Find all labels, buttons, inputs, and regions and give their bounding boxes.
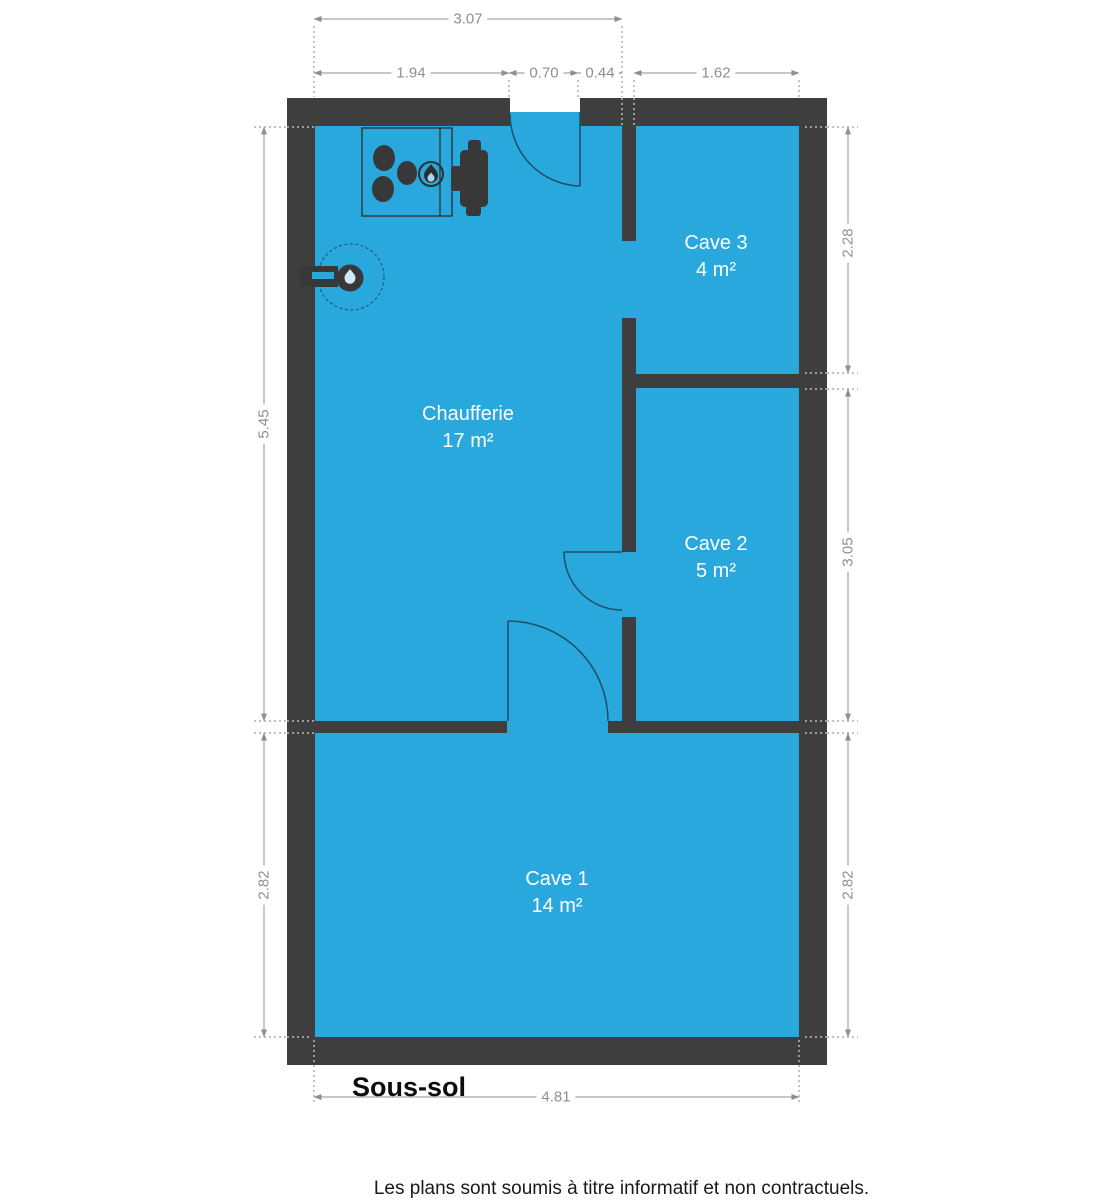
floor-title: Sous-sol xyxy=(352,1072,466,1103)
water-heater-icon xyxy=(451,140,488,216)
room-label-cave3: Cave 3 4 m² xyxy=(684,230,747,284)
dim-label-right-cave1: 2.82 xyxy=(840,865,857,904)
cave1-door-swing xyxy=(508,621,608,721)
cave2-door-swing xyxy=(564,552,622,610)
room-label-cave1: Cave 1 14 m² xyxy=(525,866,588,920)
extension-lines xyxy=(254,26,858,1103)
room-name: Cave 3 xyxy=(684,230,747,257)
entrance-door-arc xyxy=(510,114,580,186)
dim-label-right-cave3: 2.28 xyxy=(840,223,857,262)
burner-icon xyxy=(372,176,394,202)
room-area: 4 m² xyxy=(684,257,747,284)
water-meter-icon xyxy=(300,244,384,310)
dim-label-top-total: 3.07 xyxy=(448,11,487,28)
cave2-door-arc xyxy=(564,552,622,610)
plan-vector-layer xyxy=(0,0,1113,1200)
room-name: Chaufferie xyxy=(422,401,514,428)
dim-label-bottom-total: 4.81 xyxy=(536,1089,575,1106)
entrance-door-swing xyxy=(510,112,580,186)
burner-icon xyxy=(373,145,395,171)
room-name: Cave 1 xyxy=(525,866,588,893)
boiler-icon xyxy=(362,128,452,216)
dim-label-top-left: 1.94 xyxy=(391,65,430,82)
room-area: 17 m² xyxy=(422,428,514,455)
floor-plan-page: Chaufferie 17 m² Cave 3 4 m² Cave 2 5 m²… xyxy=(0,0,1113,1200)
room-label-cave2: Cave 2 5 m² xyxy=(684,531,747,585)
room-area: 5 m² xyxy=(684,558,747,585)
dim-label-left-cave1: 2.82 xyxy=(256,865,273,904)
room-name: Cave 2 xyxy=(684,531,747,558)
dim-label-top-cave3: 1.62 xyxy=(696,65,735,82)
dim-label-left-chaufferie: 5.45 xyxy=(256,404,273,443)
dim-label-top-pier: 0.44 xyxy=(580,65,619,82)
disclaimer-text: Les plans sont soumis à titre informatif… xyxy=(130,1178,1113,1200)
dim-label-top-door: 0.70 xyxy=(524,65,563,82)
room-area: 14 m² xyxy=(525,893,588,920)
dim-label-right-cave2: 3.05 xyxy=(840,532,857,571)
cave1-door-arc xyxy=(508,621,608,721)
burner-icon xyxy=(397,161,417,185)
room-label-chaufferie: Chaufferie 17 m² xyxy=(422,401,514,455)
